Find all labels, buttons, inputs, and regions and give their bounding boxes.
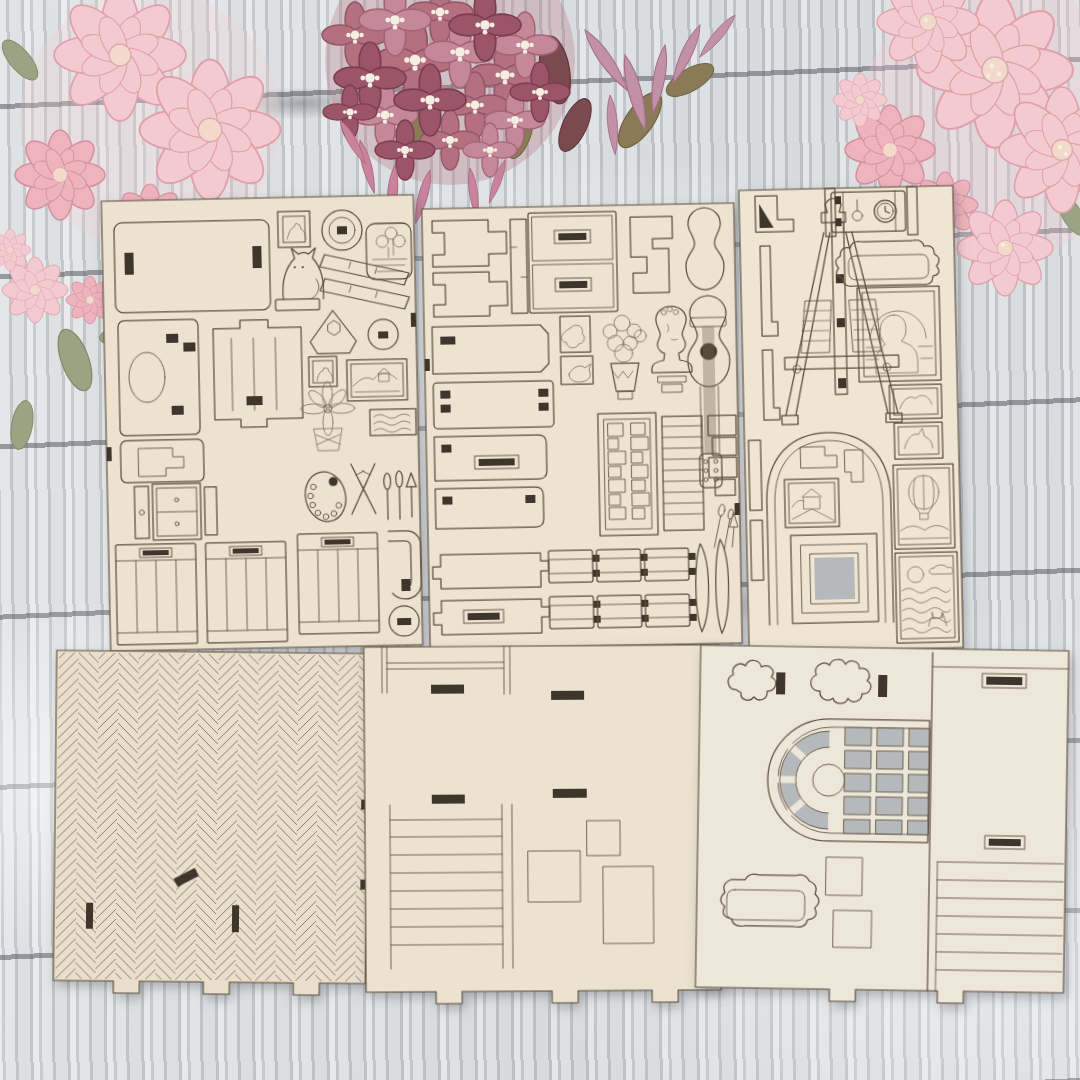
herringbone-parquet-etching xyxy=(55,652,366,981)
photo-stage xyxy=(0,0,1080,1080)
staircase-wall-panel xyxy=(364,645,721,1005)
parts-sheet-decor-right xyxy=(739,186,963,653)
arched-window-wall-panel xyxy=(695,645,1069,1006)
flower-cluster-center xyxy=(322,0,738,225)
parts-sheet-furniture-middle xyxy=(422,203,742,649)
herringbone-floor-panel xyxy=(53,650,369,997)
parts-sheet-accessories-left xyxy=(101,195,422,651)
